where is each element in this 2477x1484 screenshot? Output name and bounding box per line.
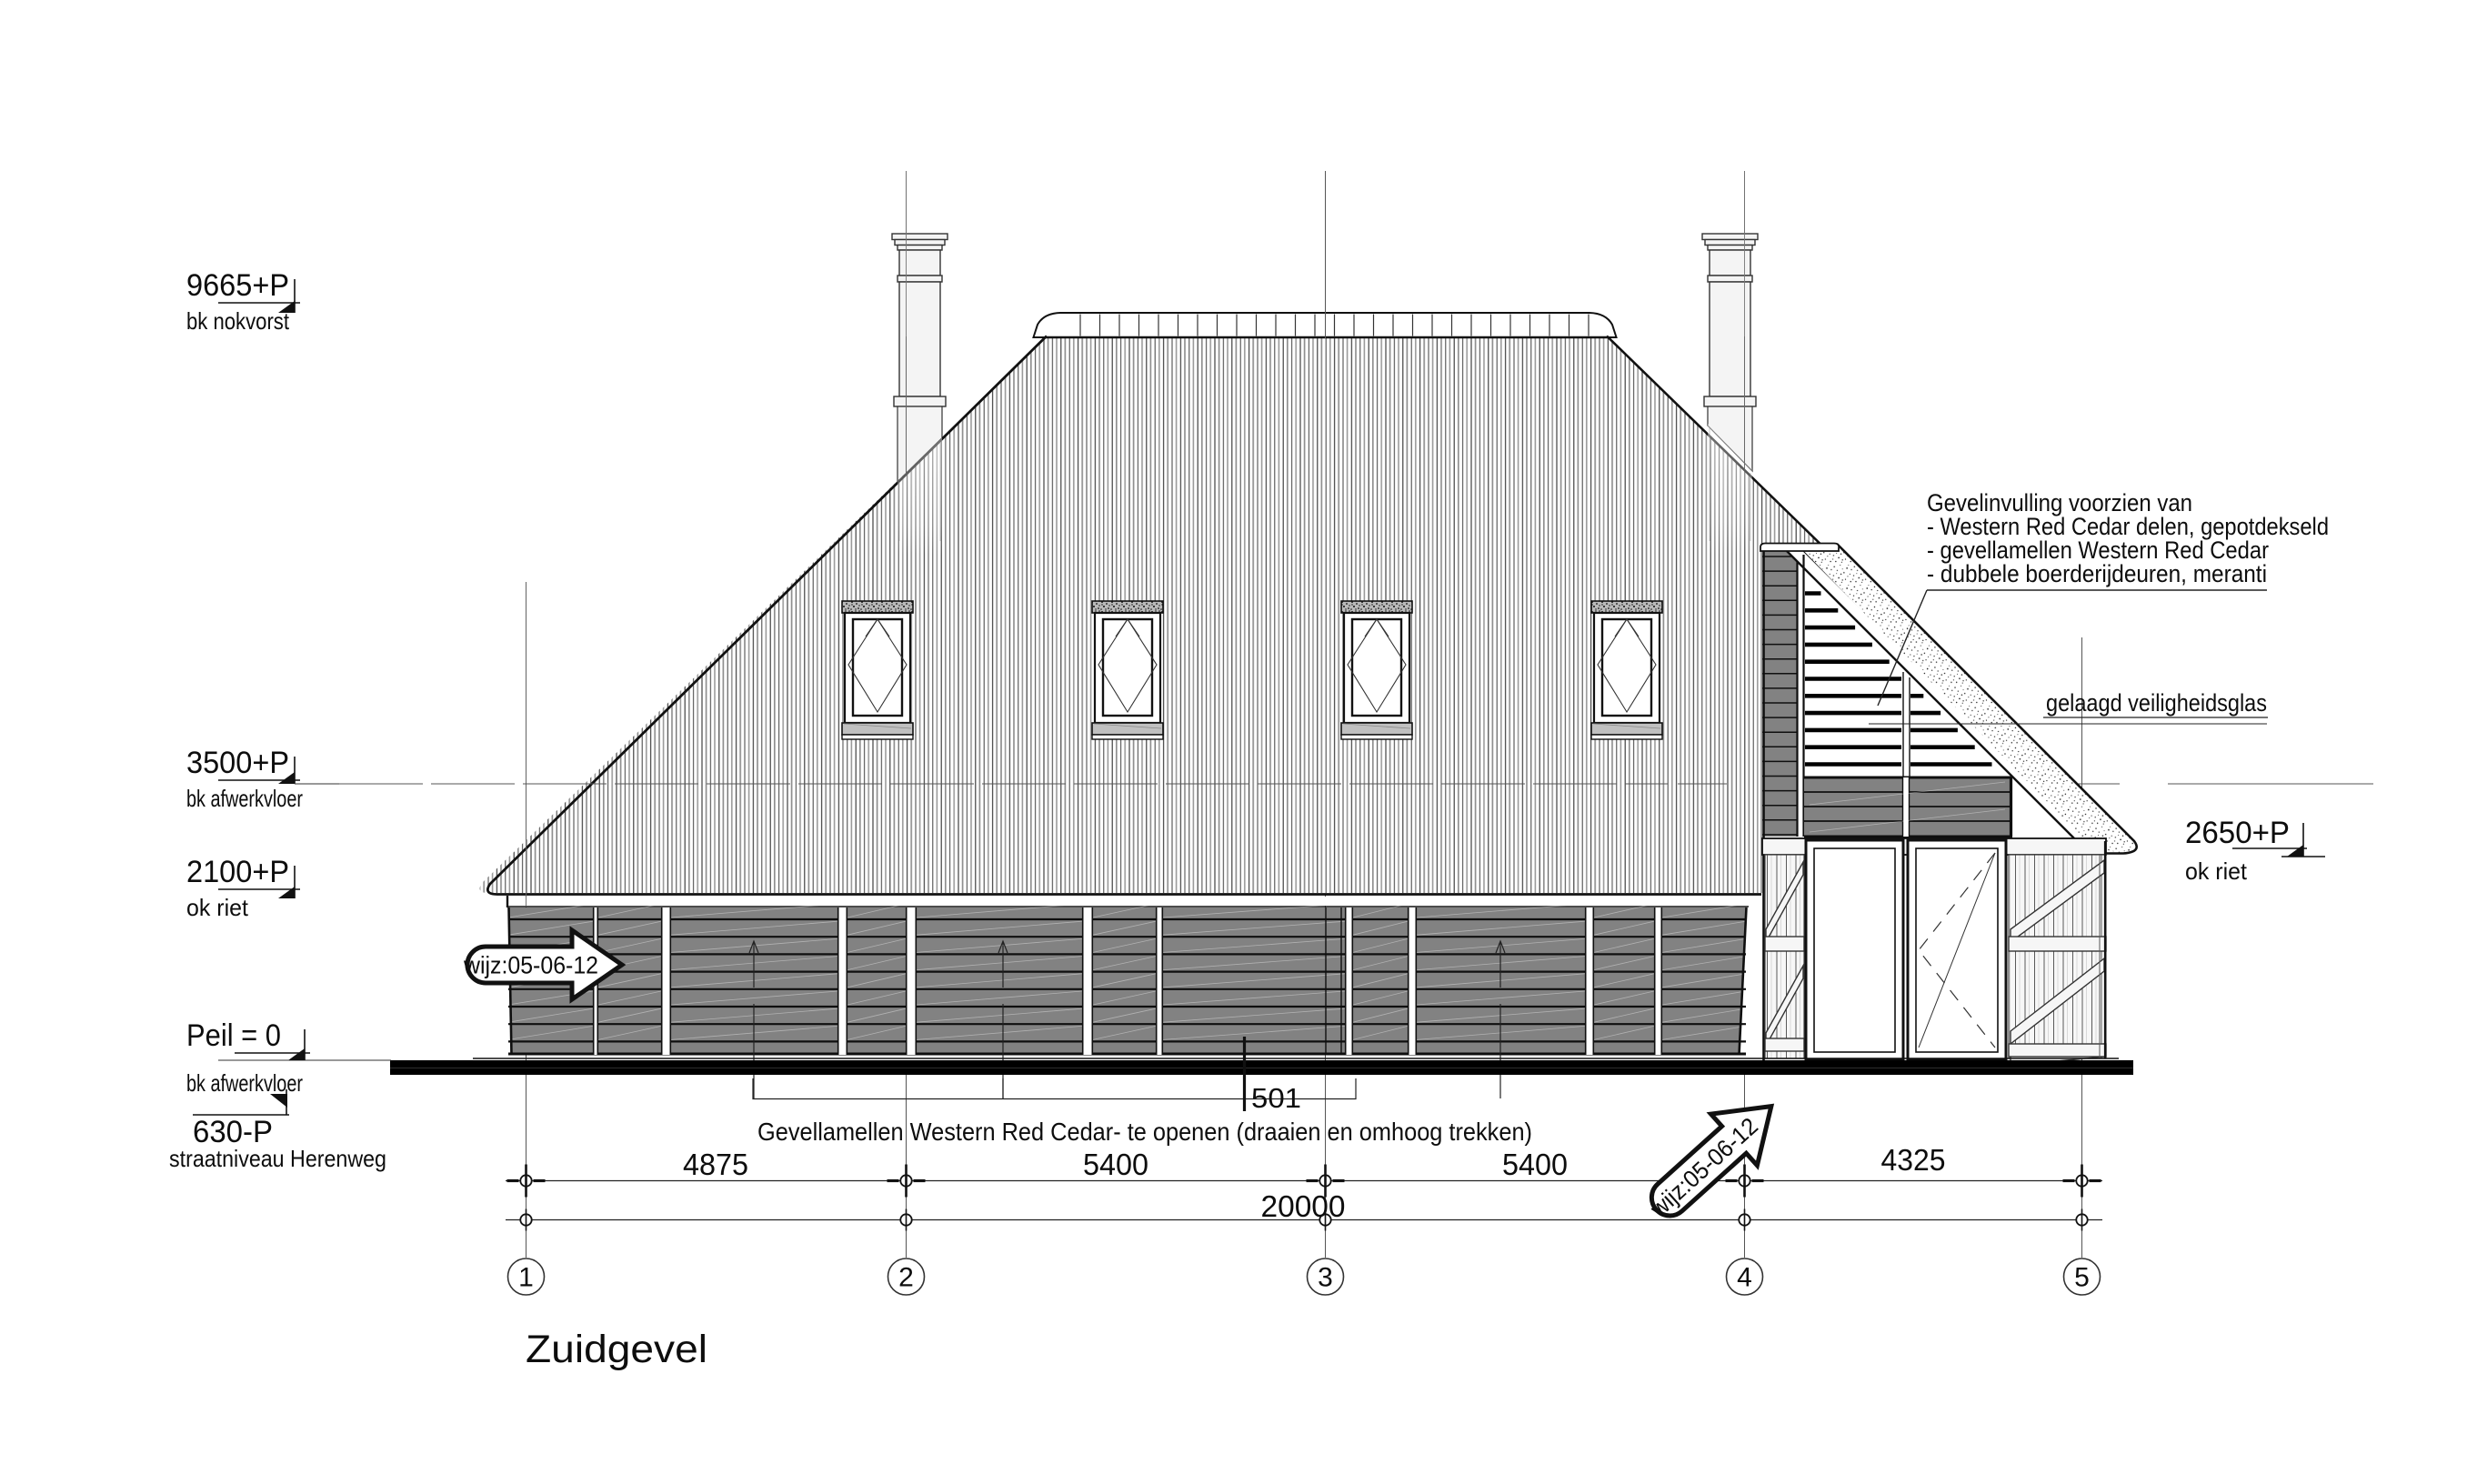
svg-text:- dubbele boerderijdeuren, mer: - dubbele boerderijdeuren, meranti [1927, 560, 2267, 587]
svg-text:Gevellamellen Western Red Ceda: Gevellamellen Western Red Cedar- te open… [757, 1118, 1532, 1146]
svg-text:wijz:05-06-12: wijz:05-06-12 [463, 952, 598, 979]
svg-text:9665+P: 9665+P [186, 268, 289, 303]
svg-text:Peil = 0: Peil = 0 [186, 1018, 281, 1053]
svg-text:ok riet: ok riet [2185, 857, 2248, 885]
svg-text:Zuidgevel: Zuidgevel [526, 1328, 707, 1371]
svg-text:bk nokvorst: bk nokvorst [186, 307, 290, 335]
svg-text:bk afwerkvloer: bk afwerkvloer [186, 785, 303, 812]
svg-text:2: 2 [898, 1263, 914, 1293]
svg-text:3500+P: 3500+P [186, 746, 289, 780]
svg-text:2100+P: 2100+P [186, 855, 289, 889]
svg-text:5: 5 [2074, 1263, 2090, 1293]
svg-text:5400: 5400 [1083, 1148, 1148, 1181]
svg-text:5400: 5400 [1502, 1148, 1568, 1181]
svg-text:3: 3 [1318, 1263, 1333, 1293]
svg-text:4875: 4875 [683, 1148, 748, 1181]
svg-text:2650+P: 2650+P [2185, 816, 2290, 850]
svg-text:20000: 20000 [1261, 1189, 1346, 1223]
svg-text:ok riet: ok riet [186, 894, 249, 921]
svg-text:gelaagd veiligheidsglas: gelaagd veiligheidsglas [2046, 689, 2267, 717]
svg-text:1: 1 [518, 1263, 534, 1293]
svg-text:straatniveau Herenweg: straatniveau Herenweg [169, 1145, 386, 1172]
svg-text:4325: 4325 [1881, 1143, 1946, 1177]
svg-text:4: 4 [1737, 1263, 1752, 1293]
svg-text:501: 501 [1251, 1082, 1301, 1114]
svg-text:bk afwerkvloer: bk afwerkvloer [186, 1069, 303, 1097]
